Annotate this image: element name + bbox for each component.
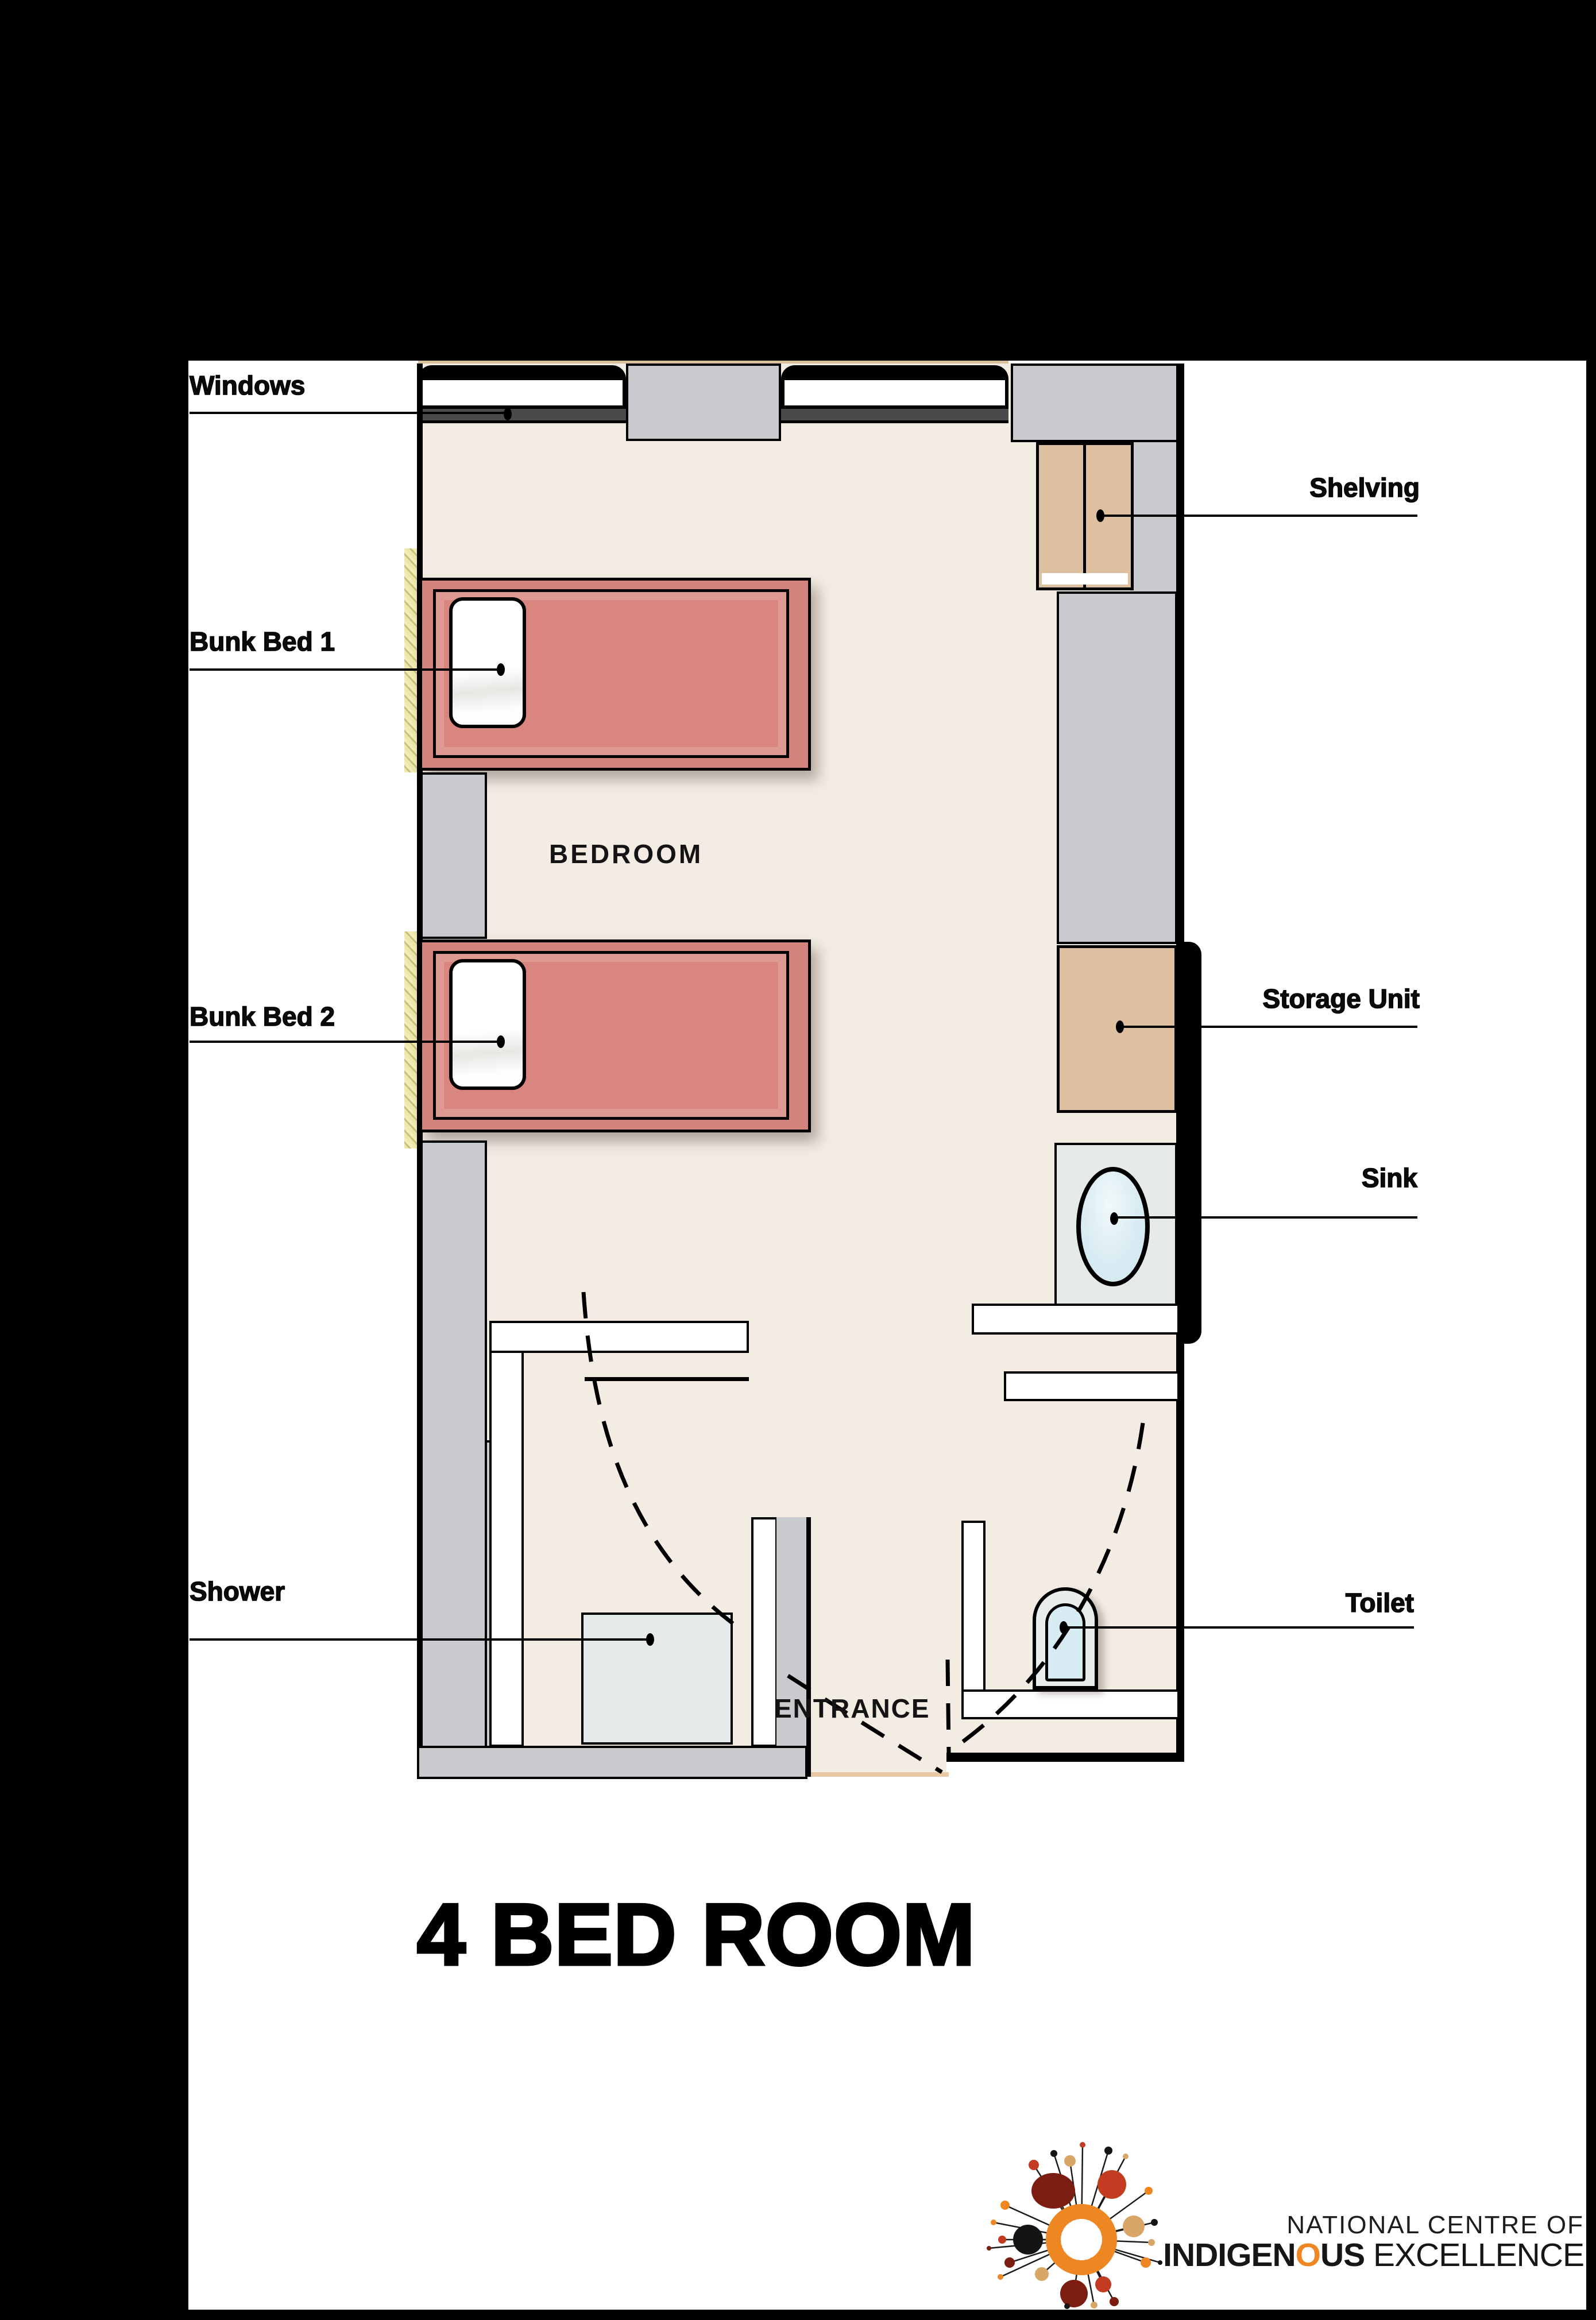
page-border-bottom (0, 2310, 1596, 2320)
logo-text-line1: NATIONAL CENTRE OF (1286, 2211, 1584, 2240)
page-title: 4 BED ROOM (417, 1885, 976, 1985)
wall-south-right (946, 1753, 1184, 1762)
callout-line-storage-unit (1120, 1026, 1417, 1028)
toilet-wall-top-inner (1004, 1371, 1180, 1401)
callout-line-bunk-bed-1 (190, 668, 501, 671)
logo-text-line2: INDIGENOUS EXCELLENCE (1163, 2236, 1584, 2274)
callout-label-windows: Windows (190, 370, 305, 401)
callout-line-shelving (1100, 515, 1417, 517)
callout-label-bunk-bed-1: Bunk Bed 1 (190, 626, 335, 657)
callout-line-shower (190, 1638, 650, 1641)
wall-pier-north (626, 364, 781, 441)
shelving-slot (1042, 573, 1128, 585)
room-label-entrance: ENTRANCE (774, 1693, 930, 1724)
curtain-strip-bed1 (404, 548, 417, 772)
entrance-threshold (806, 1772, 949, 1777)
wall-northeast-corner (1011, 364, 1180, 442)
shelving-plank-left (1036, 442, 1087, 590)
window-1 (418, 365, 626, 409)
callout-label-shelving: Shelving (1206, 472, 1420, 503)
callout-label-bunk-bed-2: Bunk Bed 2 (190, 1001, 335, 1032)
shower-wall-left (489, 1351, 524, 1747)
toilet-wall-left (961, 1521, 986, 1717)
corridor-left-line (806, 1517, 811, 1777)
shower-wall-top (489, 1321, 749, 1353)
curtain-strip-bed2 (404, 931, 417, 1149)
shower-tray (581, 1613, 733, 1745)
window-2 (781, 365, 1008, 409)
sink-basin (1076, 1167, 1150, 1286)
room-label-bedroom: BEDROOM (549, 838, 703, 869)
bunk-bed-1-pillow (449, 597, 526, 728)
callout-line-sink (1114, 1216, 1417, 1219)
logo-orange-o: O (1296, 2237, 1320, 2273)
callout-line-windows (190, 412, 508, 414)
wall-west-block-south (420, 1140, 487, 1750)
wall-east-block (1057, 591, 1177, 944)
toilet-wall-bottom (961, 1689, 1180, 1719)
wall-east-thick-shadow (1176, 942, 1201, 1344)
page-border-right (1586, 0, 1596, 2320)
toilet-bowl (1045, 1603, 1085, 1681)
toilet-wall-top-outer (972, 1304, 1180, 1335)
logo-text-indigen: INDIGEN (1163, 2237, 1296, 2273)
callout-label-storage-unit: Storage Unit (1206, 983, 1420, 1014)
callout-line-bunk-bed-2 (190, 1041, 501, 1043)
callout-label-sink: Sink (1206, 1162, 1417, 1193)
storage-unit (1057, 945, 1177, 1113)
wall-west-block-mid (420, 772, 487, 939)
callout-label-shower: Shower (190, 1576, 285, 1607)
page: BEDROOM ENTRANCE Windows Bunk Bed 1 Bunk… (0, 0, 1596, 2320)
callout-label-toilet: Toilet (1206, 1587, 1414, 1618)
page-border-left (0, 0, 188, 2320)
wall-behind-shelving (1130, 442, 1176, 591)
wall-south-left (417, 1746, 807, 1779)
page-border-top (0, 0, 1596, 361)
logo-text-excellence: EXCELLENCE (1365, 2237, 1584, 2273)
bunk-bed-2-pillow (449, 959, 526, 1090)
shower-door-track (585, 1377, 749, 1381)
logo-text-us: US (1320, 2237, 1365, 2273)
callout-line-toilet (1064, 1626, 1414, 1629)
